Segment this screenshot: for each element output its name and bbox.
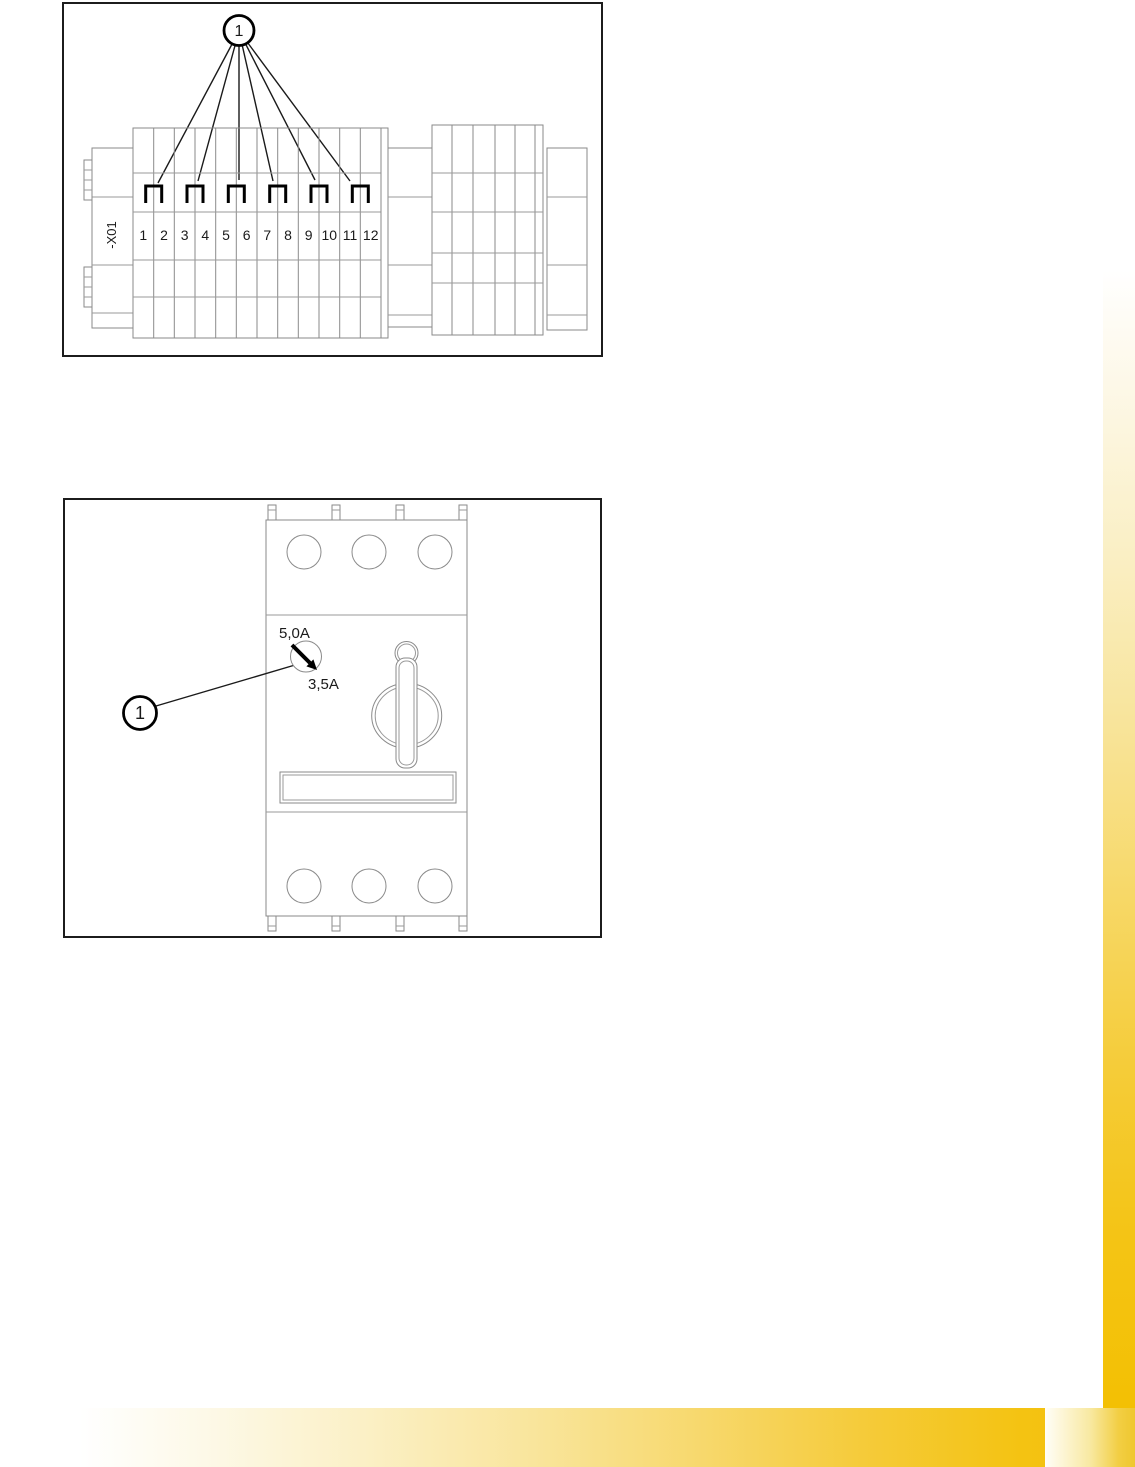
terminal-block-drawing: -X01 <box>62 2 603 357</box>
terminal-number: 1 <box>139 227 147 243</box>
toggle-lever <box>396 658 417 768</box>
terminal-screw <box>352 535 386 569</box>
rotary-handle <box>372 642 442 769</box>
strip-end-plate <box>381 128 388 338</box>
terminal-number: 8 <box>284 227 292 243</box>
left-end-bracket: -X01 <box>84 148 133 328</box>
motor-breaker-drawing: 5,0A 3,5A <box>63 498 602 938</box>
terminal-screw <box>352 869 386 903</box>
right-end-bracket <box>547 148 587 330</box>
side-gold-strip <box>1103 270 1135 1408</box>
terminal-screw <box>418 535 452 569</box>
strip-end-plate <box>535 125 543 335</box>
terminal-number: 5 <box>222 227 230 243</box>
terminal-number: 6 <box>243 227 251 243</box>
terminal-numbers: 1 2 3 4 5 6 7 8 9 10 11 12 <box>139 227 378 243</box>
terminal-number: 12 <box>363 227 379 243</box>
top-terminal-screws <box>287 535 452 569</box>
device-label-plate <box>280 772 456 803</box>
dial-set-label: 3,5A <box>308 676 339 693</box>
callout-leader-lines <box>158 31 350 183</box>
terminal-screw <box>287 869 321 903</box>
current-setting-dial: 5,0A 3,5A <box>279 625 339 693</box>
bottom-gold-bar <box>0 1408 1135 1467</box>
callout-badge: 1 <box>224 16 254 46</box>
terminal-strip-tag: -X01 <box>104 221 119 248</box>
figure-frame <box>63 3 602 356</box>
din-rail-section <box>388 148 432 327</box>
manual-page: -X01 <box>0 0 1135 1467</box>
terminal-block-figure: -X01 <box>62 2 603 357</box>
breaker-body <box>266 520 467 916</box>
terminal-number: 2 <box>160 227 168 243</box>
bottom-terminal-screws <box>287 869 452 903</box>
callout-badge: 1 <box>124 697 157 730</box>
terminal-number: 4 <box>201 227 209 243</box>
motor-breaker-figure: 5,0A 3,5A <box>63 498 602 938</box>
callout-leader-line <box>156 665 295 706</box>
mounting-tabs-top <box>268 505 467 520</box>
callout-number: 1 <box>235 23 244 40</box>
terminal-number: 9 <box>305 227 313 243</box>
terminal-number: 11 <box>343 227 358 243</box>
dial-max-label: 5,0A <box>279 625 310 642</box>
terminal-number: 7 <box>263 227 271 243</box>
terminal-number: 10 <box>322 227 338 243</box>
callout-number: 1 <box>135 703 145 723</box>
terminal-screw <box>418 869 452 903</box>
mounting-tabs-bottom <box>268 916 467 931</box>
terminal-number: 3 <box>181 227 189 243</box>
terminal-screw <box>287 535 321 569</box>
corner-gold-glow <box>1045 1408 1135 1467</box>
second-terminal-strip <box>432 125 543 335</box>
